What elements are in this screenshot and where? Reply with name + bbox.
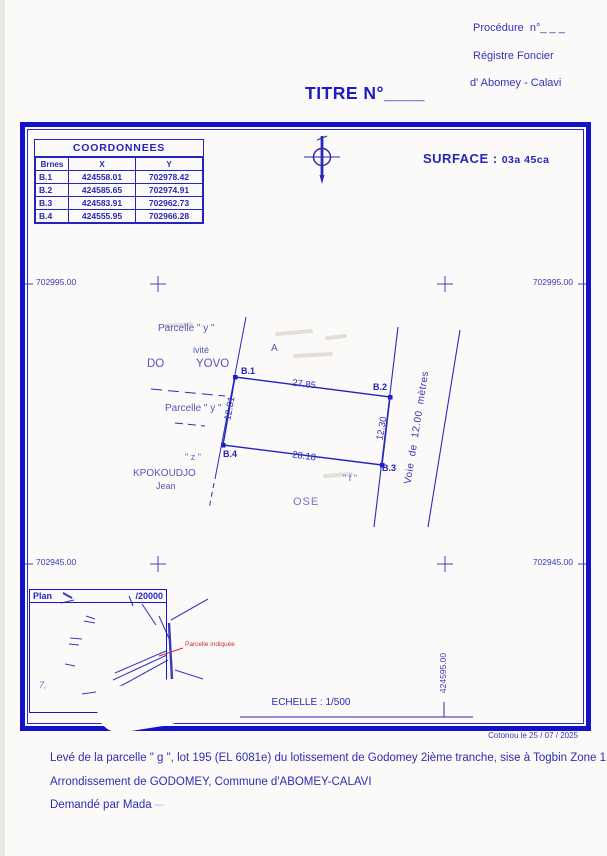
borne-y: 702978.42 xyxy=(136,171,203,184)
grid-y-top-right: 702995.00 xyxy=(533,277,573,287)
point-label-b2: B.2 xyxy=(373,382,387,392)
scanned-land-title-page: Procédure n°_ _ _ Régistre Foncier d' Ab… xyxy=(0,0,607,856)
neighbor-activity-fragment: ivité xyxy=(193,345,209,355)
land-title-heading: TITRE N°____ xyxy=(280,83,450,104)
table-row: B.3 424583.91 702962.73 xyxy=(36,197,203,210)
coordinates-header-row: Brnes X Y xyxy=(36,158,203,171)
neighbor-parcel-z-fragment: " z " xyxy=(185,452,201,462)
survey-description-line3: Demandé par Mada –· xyxy=(50,799,165,811)
coordinates-table: COORDONNEES Brnes X Y B.1 424558.01 7029… xyxy=(34,139,204,224)
table-row: B.1 424558.01 702978.42 xyxy=(36,171,203,184)
coordinates-table-title: COORDONNEES xyxy=(35,140,203,157)
grid-y-top-left: 702995.00 xyxy=(36,277,76,287)
grid-cross-marks xyxy=(25,276,586,572)
neighbor-owner-kpokoudjo: KPOKOUDJO xyxy=(133,468,196,479)
borne-x: 424555.95 xyxy=(69,210,136,223)
neighbor-fragment-a: A xyxy=(271,343,278,354)
neighbor-parcel-y-mid: Parcelle " y " xyxy=(165,403,222,414)
point-label-b1: B.1 xyxy=(241,366,255,376)
surface-label: SURFACE : xyxy=(423,151,498,166)
neighbor-parcel-y-top: Parcelle " y " xyxy=(158,323,215,334)
borne-x: 424558.01 xyxy=(69,171,136,184)
table-row: B.2 424585.65 702974.91 xyxy=(36,184,203,197)
inset-sketch-fragment: 7, xyxy=(39,680,47,690)
point-label-b3: B.3 xyxy=(382,463,396,473)
borne-y: 702962.73 xyxy=(136,197,203,210)
point-label-b4: B.4 xyxy=(223,449,237,459)
survey-description-line1: Levé de la parcelle " g ", lot 195 (EL 6… xyxy=(50,752,606,764)
borne-id: B.4 xyxy=(36,210,69,223)
inset-map-scale: /20000 xyxy=(135,591,163,601)
grid-x-label: 424595.00 xyxy=(438,643,448,703)
borne-id: B.2 xyxy=(36,184,69,197)
borne-id: B.3 xyxy=(36,197,69,210)
grid-y-bottom-left: 702945.00 xyxy=(36,557,76,567)
north-compass-icon xyxy=(304,136,340,184)
land-registry-label: Régistre Foncier xyxy=(473,50,554,62)
registry-commune-label: d' Abomey - Calavi xyxy=(470,77,561,89)
col-y: Y xyxy=(136,158,203,171)
date-place-note: Cotonou le 25 / 07 / 2025 xyxy=(488,731,578,740)
neighbor-owner-jean: Jean xyxy=(156,481,176,491)
neighbor-owner-yovo: DO YOVO xyxy=(147,358,229,370)
parcel-indicated-annotation: Parcelle indiquée xyxy=(185,641,235,648)
table-row: B.4 424555.95 702966.28 xyxy=(36,210,203,223)
survey-description-line2: Arrondissement de GODOMEY, Commune d'ABO… xyxy=(50,776,372,788)
inset-map-title: Plan xyxy=(33,591,52,601)
erased-name-fragment: –· xyxy=(155,799,165,811)
surface-area: SURFACE : 03a 45ca xyxy=(423,151,549,166)
neighbor-parcel-f-fragment: " f " xyxy=(343,473,357,483)
inset-map-titlebar: Plan /20000 xyxy=(30,590,166,603)
scale-label: ECHELLE : 1/500 xyxy=(266,697,356,708)
col-x: X xyxy=(69,158,136,171)
procedure-number-label: Procédure n°_ _ _ xyxy=(473,22,565,34)
requested-by-text: Demandé par Mada xyxy=(50,799,152,811)
neighbor-fragment-ose: OSE xyxy=(293,496,319,508)
borne-id: B.1 xyxy=(36,171,69,184)
borne-y: 702974.91 xyxy=(136,184,203,197)
surface-value: 03a 45ca xyxy=(502,154,550,166)
borne-y: 702966.28 xyxy=(136,210,203,223)
col-bornes: Brnes xyxy=(36,158,69,171)
borne-x: 424585.65 xyxy=(69,184,136,197)
borne-x: 424583.91 xyxy=(69,197,136,210)
plan-frame: COORDONNEES Brnes X Y B.1 424558.01 7029… xyxy=(20,122,591,731)
grid-y-bottom-right: 702945.00 xyxy=(533,557,573,567)
